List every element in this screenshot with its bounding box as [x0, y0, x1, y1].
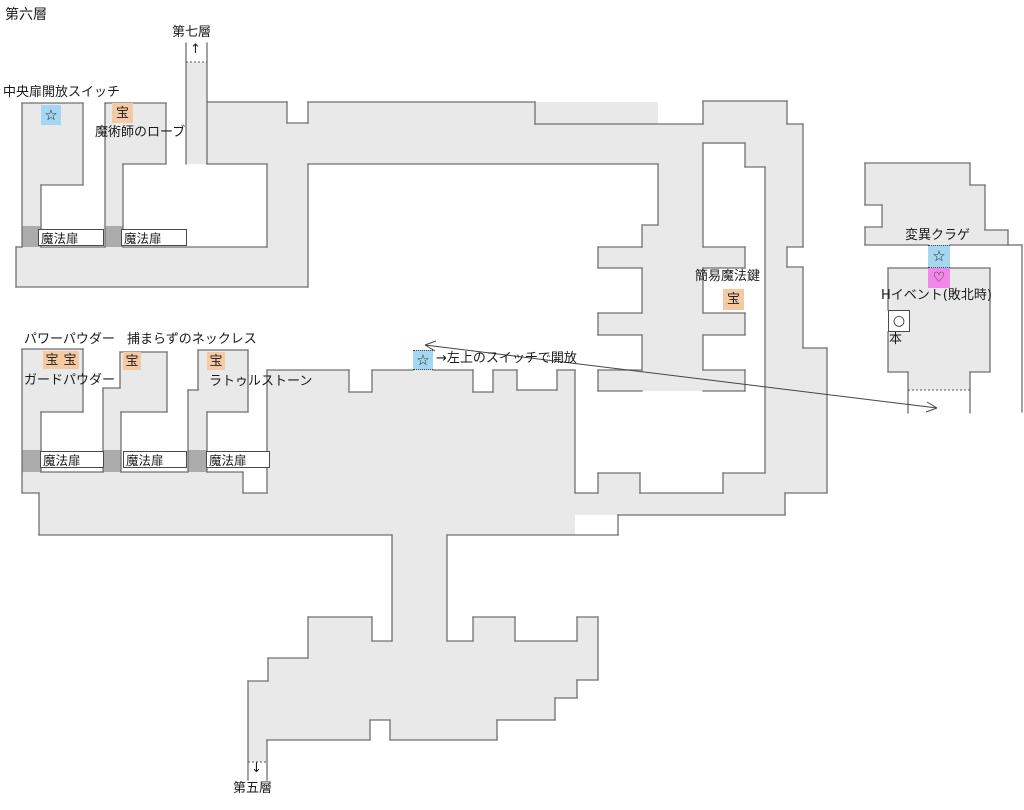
map-void — [248, 658, 268, 681]
map-area — [598, 370, 745, 391]
map-void — [41, 412, 103, 472]
connection-arrow-head — [425, 341, 436, 345]
map-void — [515, 617, 577, 641]
map-void — [555, 698, 577, 740]
map-area — [642, 225, 703, 370]
magic-door-block — [22, 450, 41, 472]
map-area — [575, 493, 785, 515]
map-void — [787, 247, 803, 267]
map-area — [745, 143, 765, 167]
map-void — [207, 412, 267, 472]
map-area — [765, 348, 827, 493]
magic-door-block — [105, 226, 123, 247]
map-area — [267, 370, 575, 535]
map-void — [865, 205, 882, 227]
connection-arrow-head — [926, 408, 937, 412]
map-void — [970, 163, 1008, 185]
map-area — [598, 473, 640, 493]
map-area — [103, 388, 167, 412]
map-area — [248, 740, 267, 762]
map-area — [207, 102, 658, 164]
dungeon-map-page: 第六層 第七層↑中央扉開放スイッチ魔術師のローブパワーパウダー捕まらずのネックレ… — [0, 0, 1024, 810]
map-void — [473, 370, 493, 392]
map-void — [349, 370, 372, 392]
map-void — [497, 720, 555, 740]
dungeon-map-canvas — [0, 0, 1024, 810]
map-area — [703, 101, 787, 124]
map-area — [22, 472, 243, 493]
magic-door-block — [188, 450, 207, 472]
map-area — [267, 164, 308, 247]
map-area — [22, 349, 83, 412]
map-area — [765, 143, 803, 348]
map-area — [188, 390, 248, 412]
map-void — [370, 720, 390, 740]
map-area — [598, 313, 745, 335]
map-area — [198, 350, 248, 390]
map-void — [287, 102, 308, 123]
map-area — [39, 493, 267, 535]
magic-door-block — [22, 226, 41, 247]
map-void — [372, 617, 392, 641]
map-area — [186, 62, 207, 164]
map-area — [658, 124, 803, 144]
map-area — [598, 247, 745, 268]
map-area — [658, 143, 703, 225]
map-area — [723, 473, 765, 493]
map-void — [121, 412, 188, 472]
map-area — [888, 268, 990, 372]
map-area — [120, 352, 167, 388]
map-void — [41, 185, 83, 247]
map-void — [577, 680, 598, 740]
map-void — [517, 370, 557, 390]
map-void — [123, 164, 166, 247]
map-void — [447, 617, 473, 641]
map-area — [16, 247, 308, 287]
map-void — [248, 617, 308, 658]
map-area — [908, 372, 970, 390]
map-void — [985, 185, 1008, 230]
magic-door-block — [103, 450, 121, 472]
